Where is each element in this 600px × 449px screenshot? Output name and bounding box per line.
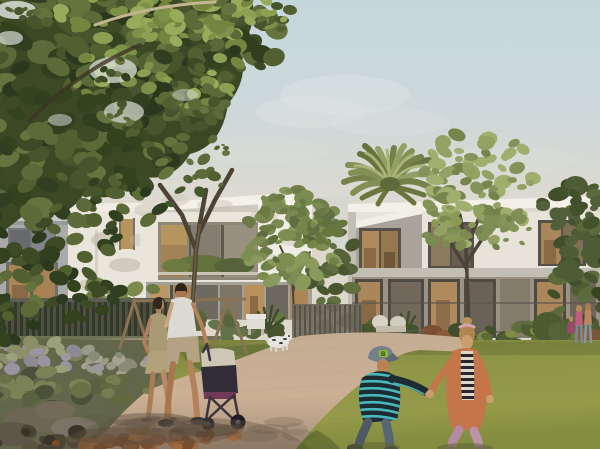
svg-text:B: B — [381, 352, 386, 358]
